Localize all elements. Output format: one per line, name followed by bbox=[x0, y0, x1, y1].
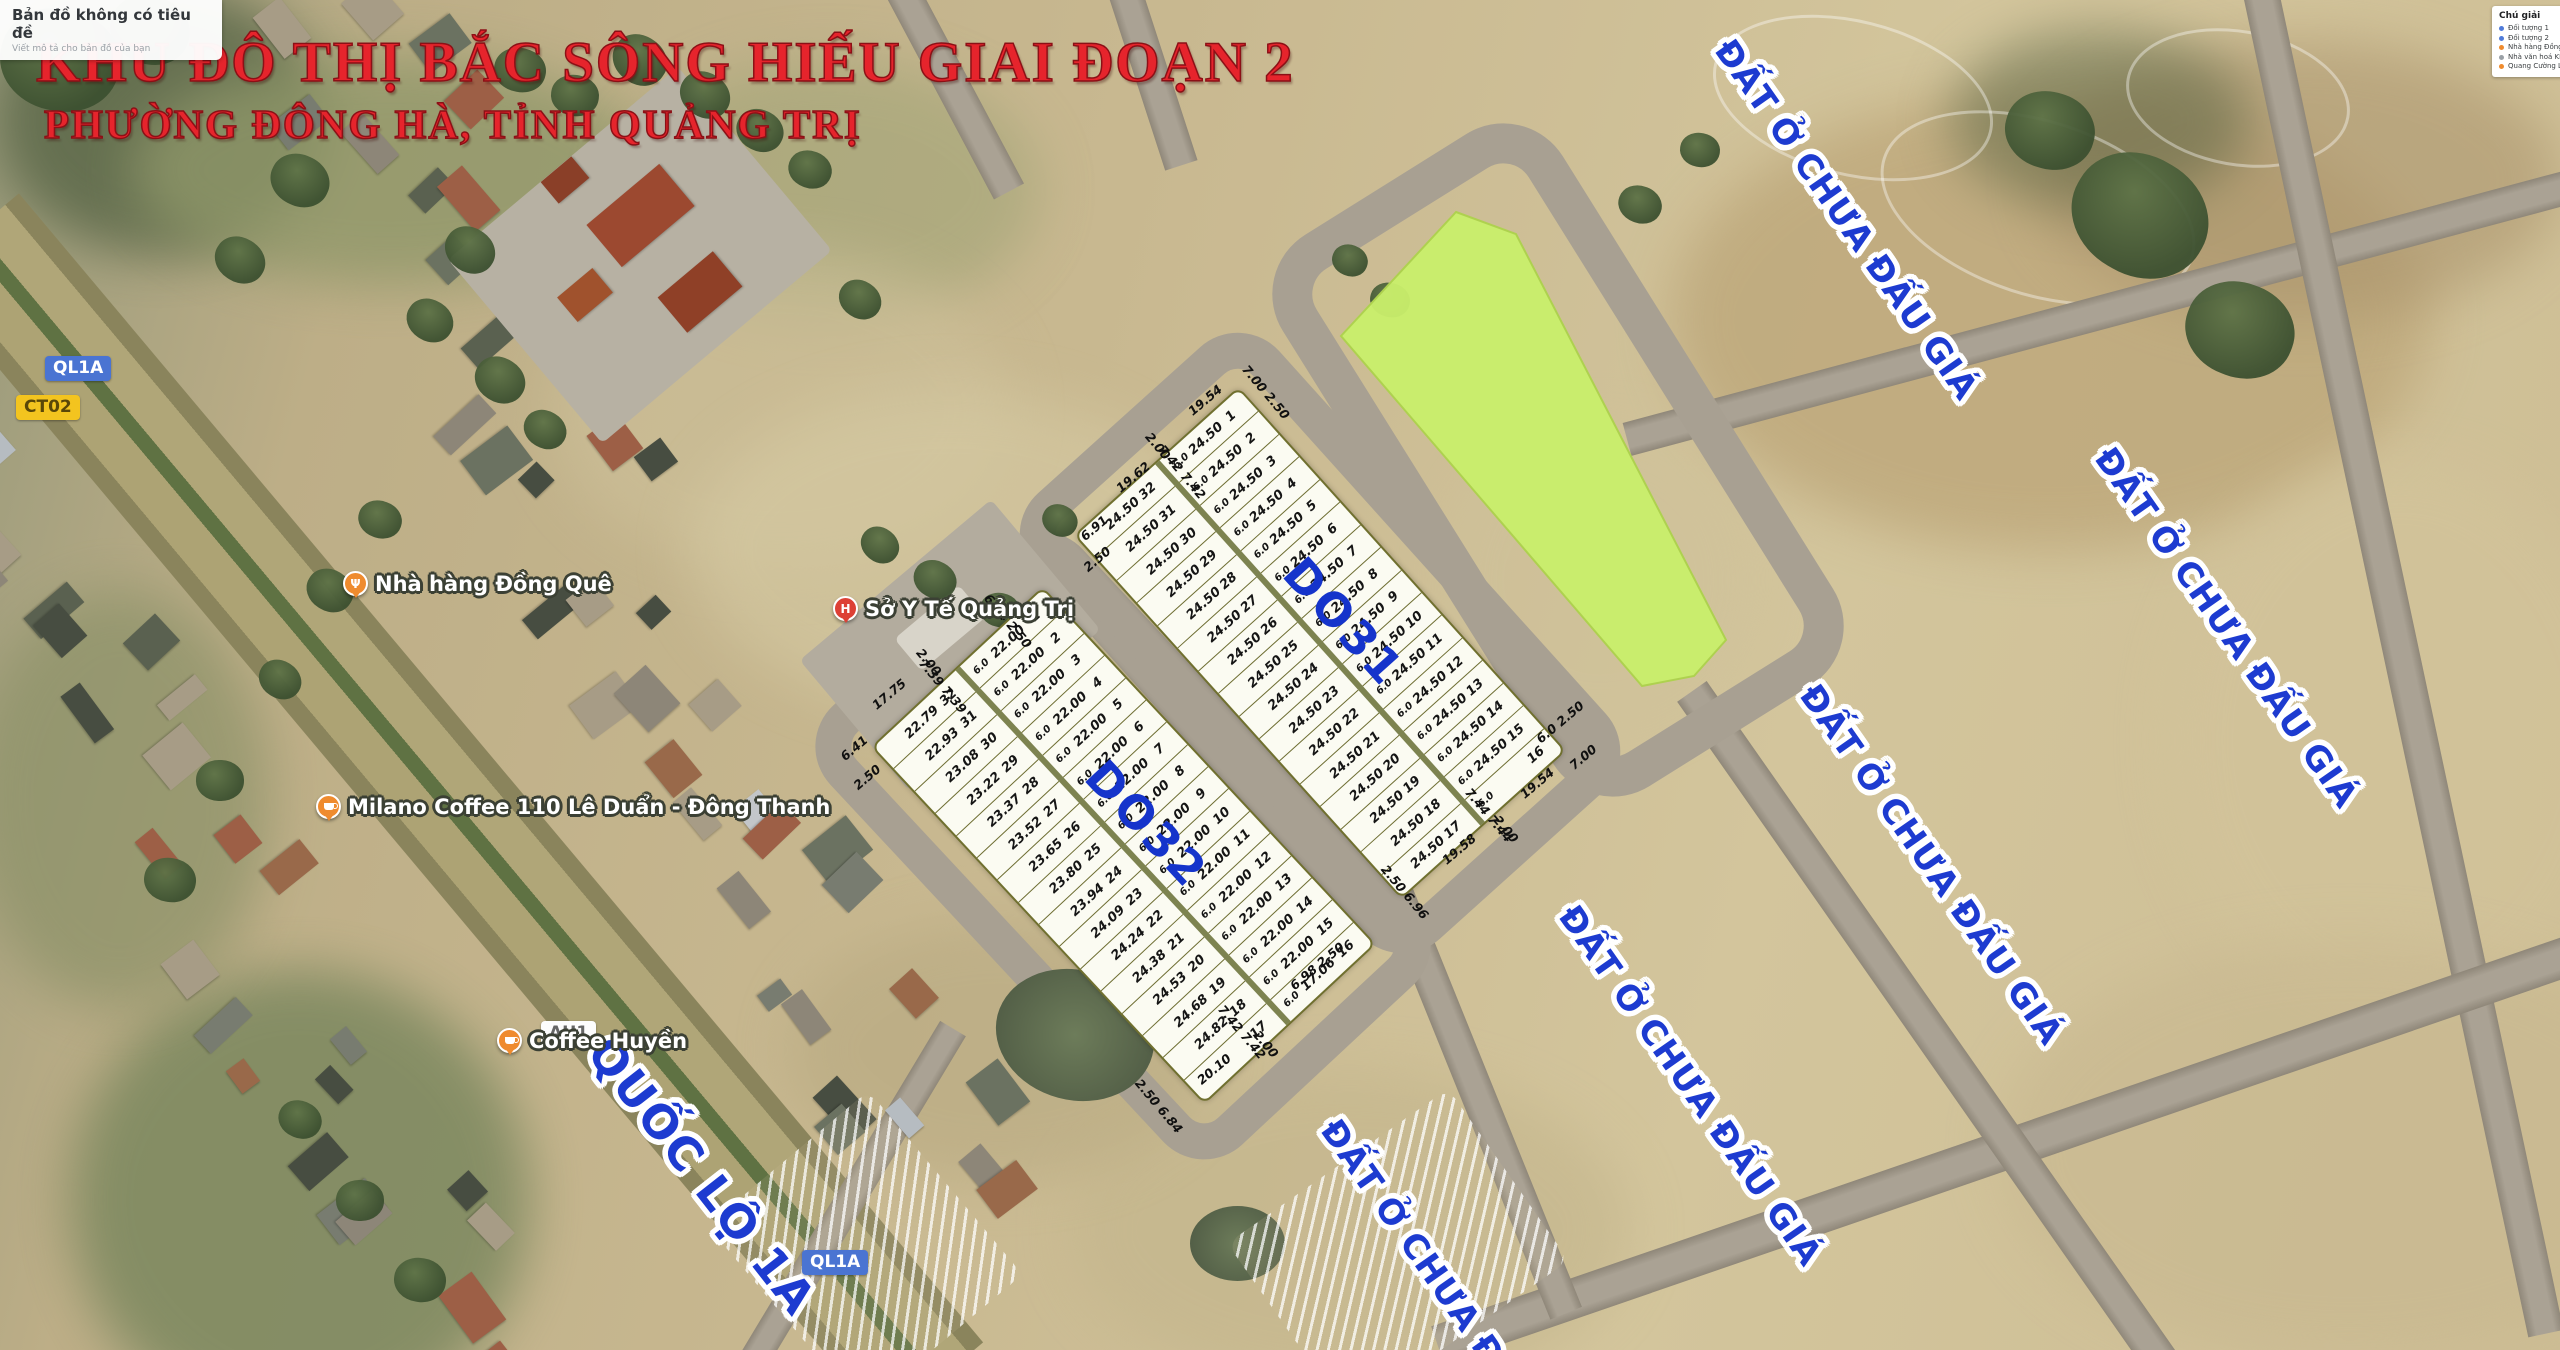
legend-item-icon bbox=[2499, 36, 2504, 41]
legend-item-label: Nhà văn hoá KP2, phường Đông Thành bbox=[2508, 53, 2560, 63]
legend-item-icon bbox=[2499, 45, 2504, 50]
restaurant-marker-icon[interactable]: Ψ bbox=[343, 571, 368, 596]
legend-item-label: Đối tượng 1 bbox=[2508, 24, 2549, 34]
poi-label[interactable]: Nhà hàng Đồng Quê bbox=[375, 572, 612, 596]
legend-header: Chú giải bbox=[2499, 11, 2560, 21]
hospital-marker-icon[interactable]: H bbox=[833, 596, 858, 621]
poi-coffee[interactable]: Milano Coffee 110 Lê Duẩn - Đông Thanh bbox=[316, 794, 830, 819]
poi-label[interactable]: Sở Y Tế Quảng Trị bbox=[865, 597, 1074, 621]
poi-markers: ΨNhà hàng Đồng QuêHSở Y Tế Quảng TrịMila… bbox=[0, 0, 2560, 1350]
legend-item-1[interactable]: Đối tượng 2 bbox=[2499, 34, 2560, 44]
legend-item-icon bbox=[2499, 26, 2504, 31]
legend-item-label: Quang Cường Limousine bbox=[2508, 62, 2560, 72]
poi-hospital[interactable]: HSở Y Tế Quảng Trị bbox=[833, 596, 1074, 621]
map-canvas: 24.5016.024.5026.024.5036.024.5046.024.5… bbox=[0, 0, 2560, 1350]
legend-item-icon bbox=[2499, 55, 2504, 60]
legend-item-icon bbox=[2499, 64, 2504, 69]
map-title-line1: KHU ĐÔ THỊ BẮC SÔNG HIẾU GIAI ĐOẠN 2 bbox=[36, 30, 1295, 95]
map-title-line2: PHƯỜNG ĐÔNG HÀ, TỈNH QUẢNG TRỊ bbox=[44, 100, 862, 148]
legend-item-3[interactable]: Nhà văn hoá KP2, phường Đông Thành bbox=[2499, 53, 2560, 63]
legend-item-label: Đối tượng 2 bbox=[2508, 34, 2549, 44]
map-name-title[interactable]: Bản đồ không có tiêu đề bbox=[12, 6, 210, 42]
map-name-subtitle[interactable]: Viết mô tả cho bản đồ của bạn bbox=[12, 44, 210, 54]
legend-item-label: Nhà hàng Đồng Quê bbox=[2508, 43, 2560, 53]
legend-item-2[interactable]: Nhà hàng Đồng Quê bbox=[2499, 43, 2560, 53]
coffee-marker-icon[interactable] bbox=[497, 1028, 522, 1053]
legend-panel[interactable]: Chú giải Đối tượng 1Đối tượng 2Nhà hàng … bbox=[2492, 6, 2560, 77]
legend-item-0[interactable]: Đối tượng 1 bbox=[2499, 24, 2560, 34]
coffee-marker-icon[interactable] bbox=[316, 794, 341, 819]
map-name-card[interactable]: Bản đồ không có tiêu đề Viết mô tả cho b… bbox=[0, 0, 222, 60]
poi-label[interactable]: Milano Coffee 110 Lê Duẩn - Đông Thanh bbox=[348, 795, 830, 819]
poi-label[interactable]: Coffee Huyền bbox=[529, 1029, 687, 1053]
legend-item-4[interactable]: Quang Cường Limousine bbox=[2499, 62, 2560, 72]
poi-restaurant[interactable]: ΨNhà hàng Đồng Quê bbox=[343, 571, 612, 596]
poi-coffee[interactable]: Coffee Huyền bbox=[497, 1028, 687, 1053]
